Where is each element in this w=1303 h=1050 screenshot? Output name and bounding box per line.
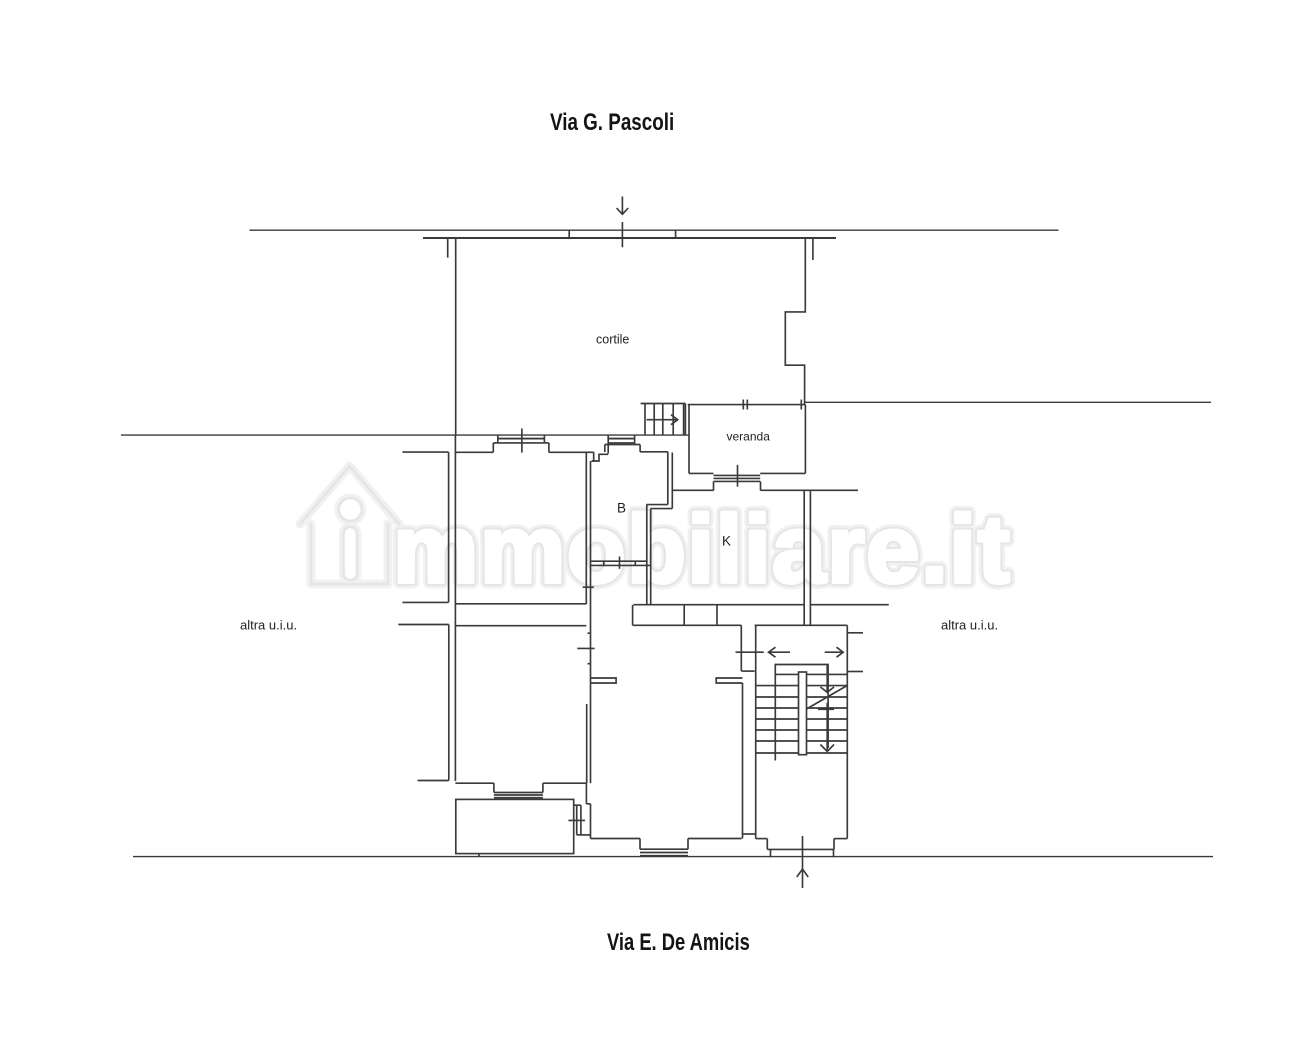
svg-text:Via G. Pascoli: Via G. Pascoli xyxy=(550,108,674,136)
svg-text:mmobiliare.it: mmobiliare.it xyxy=(393,496,1011,603)
svg-text:K: K xyxy=(722,534,731,549)
svg-text:cortile: cortile xyxy=(596,333,629,347)
svg-text:veranda: veranda xyxy=(727,430,771,444)
svg-text:altra u.i.u.: altra u.i.u. xyxy=(240,618,297,633)
svg-text:altra u.i.u.: altra u.i.u. xyxy=(941,618,998,633)
svg-text:Via E. De Amicis: Via E. De Amicis xyxy=(607,929,750,956)
svg-text:B: B xyxy=(617,501,626,516)
